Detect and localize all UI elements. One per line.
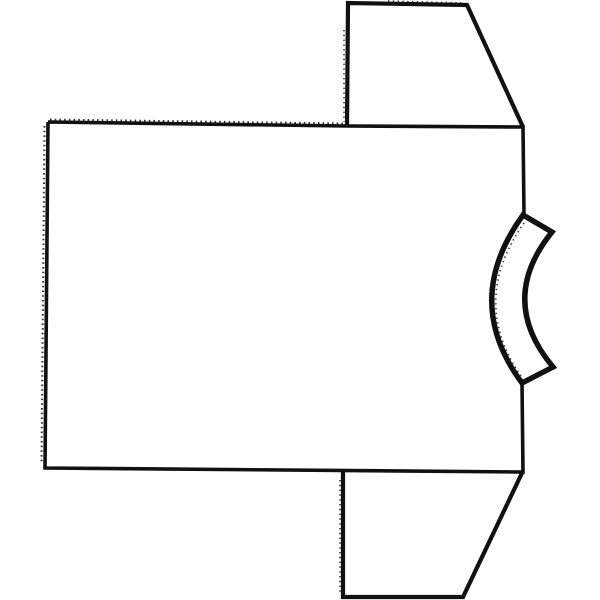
neckband-outline	[492, 215, 553, 383]
top-sleeve-outline	[347, 3, 523, 127]
tshirt-pattern-svg	[0, 0, 600, 600]
shirt-body-outline	[45, 122, 524, 472]
bottom-sleeve-outline	[343, 472, 522, 597]
tshirt-line-drawing	[0, 0, 600, 600]
